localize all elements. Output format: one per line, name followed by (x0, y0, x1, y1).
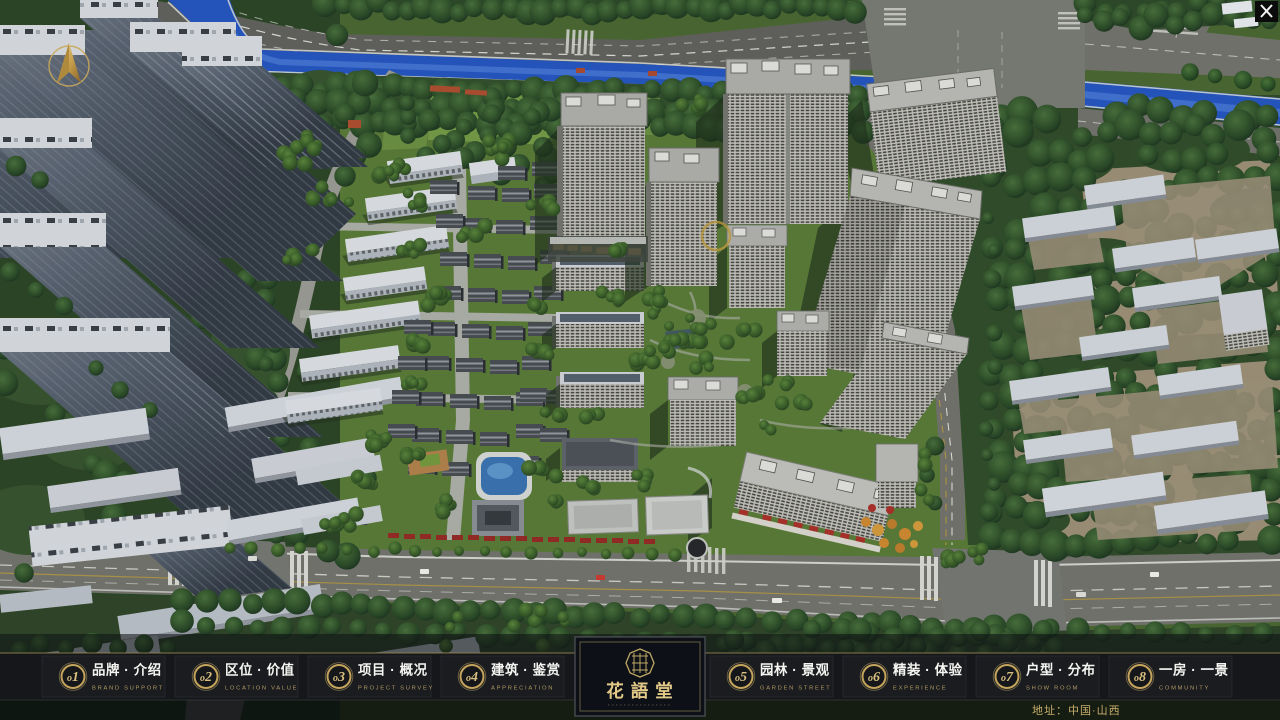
svg-text:o2: o2 (200, 670, 212, 685)
svg-text:o1: o1 (67, 670, 79, 685)
svg-text:o4: o4 (466, 670, 478, 685)
svg-text:COMMUNITY: COMMUNITY (1159, 686, 1210, 692)
svg-text:区位 · 价值: 区位 · 价值 (225, 662, 295, 678)
svg-text:o8: o8 (1134, 670, 1146, 685)
svg-text:GARDEN STREET: GARDEN STREET (760, 686, 831, 692)
svg-text:APPRECIATION: APPRECIATION (491, 686, 554, 692)
svg-text:o5: o5 (735, 670, 747, 685)
svg-text:地址：中国·山西: 地址：中国·山西 (1032, 703, 1121, 717)
svg-text:精装 · 体验: 精装 · 体验 (893, 662, 963, 678)
svg-text:品牌 · 介绍: 品牌 · 介绍 (92, 662, 162, 678)
svg-text:花語堂: 花語堂 (606, 681, 680, 701)
svg-text:EXPERIENCE: EXPERIENCE (893, 686, 947, 692)
svg-text:o7: o7 (1001, 670, 1014, 685)
svg-text:户型 · 分布: 户型 · 分布 (1026, 662, 1096, 678)
svg-text:o3: o3 (333, 670, 345, 685)
svg-text:BRAND SUPPORT: BRAND SUPPORT (92, 686, 164, 692)
svg-text:o6: o6 (868, 670, 880, 685)
svg-text:SHOW ROOM: SHOW ROOM (1026, 686, 1079, 692)
svg-text:园林 · 景观: 园林 · 景观 (760, 662, 830, 678)
svg-text:建筑 · 鉴赏: 建筑 · 鉴赏 (491, 662, 561, 678)
svg-text:项目 · 概况: 项目 · 概况 (358, 662, 428, 678)
svg-text:一房 · 一景: 一房 · 一景 (1159, 662, 1229, 678)
svg-text:LOCATION VALUE: LOCATION VALUE (225, 686, 298, 692)
svg-text:PROJECT SURVEY: PROJECT SURVEY (358, 686, 434, 692)
